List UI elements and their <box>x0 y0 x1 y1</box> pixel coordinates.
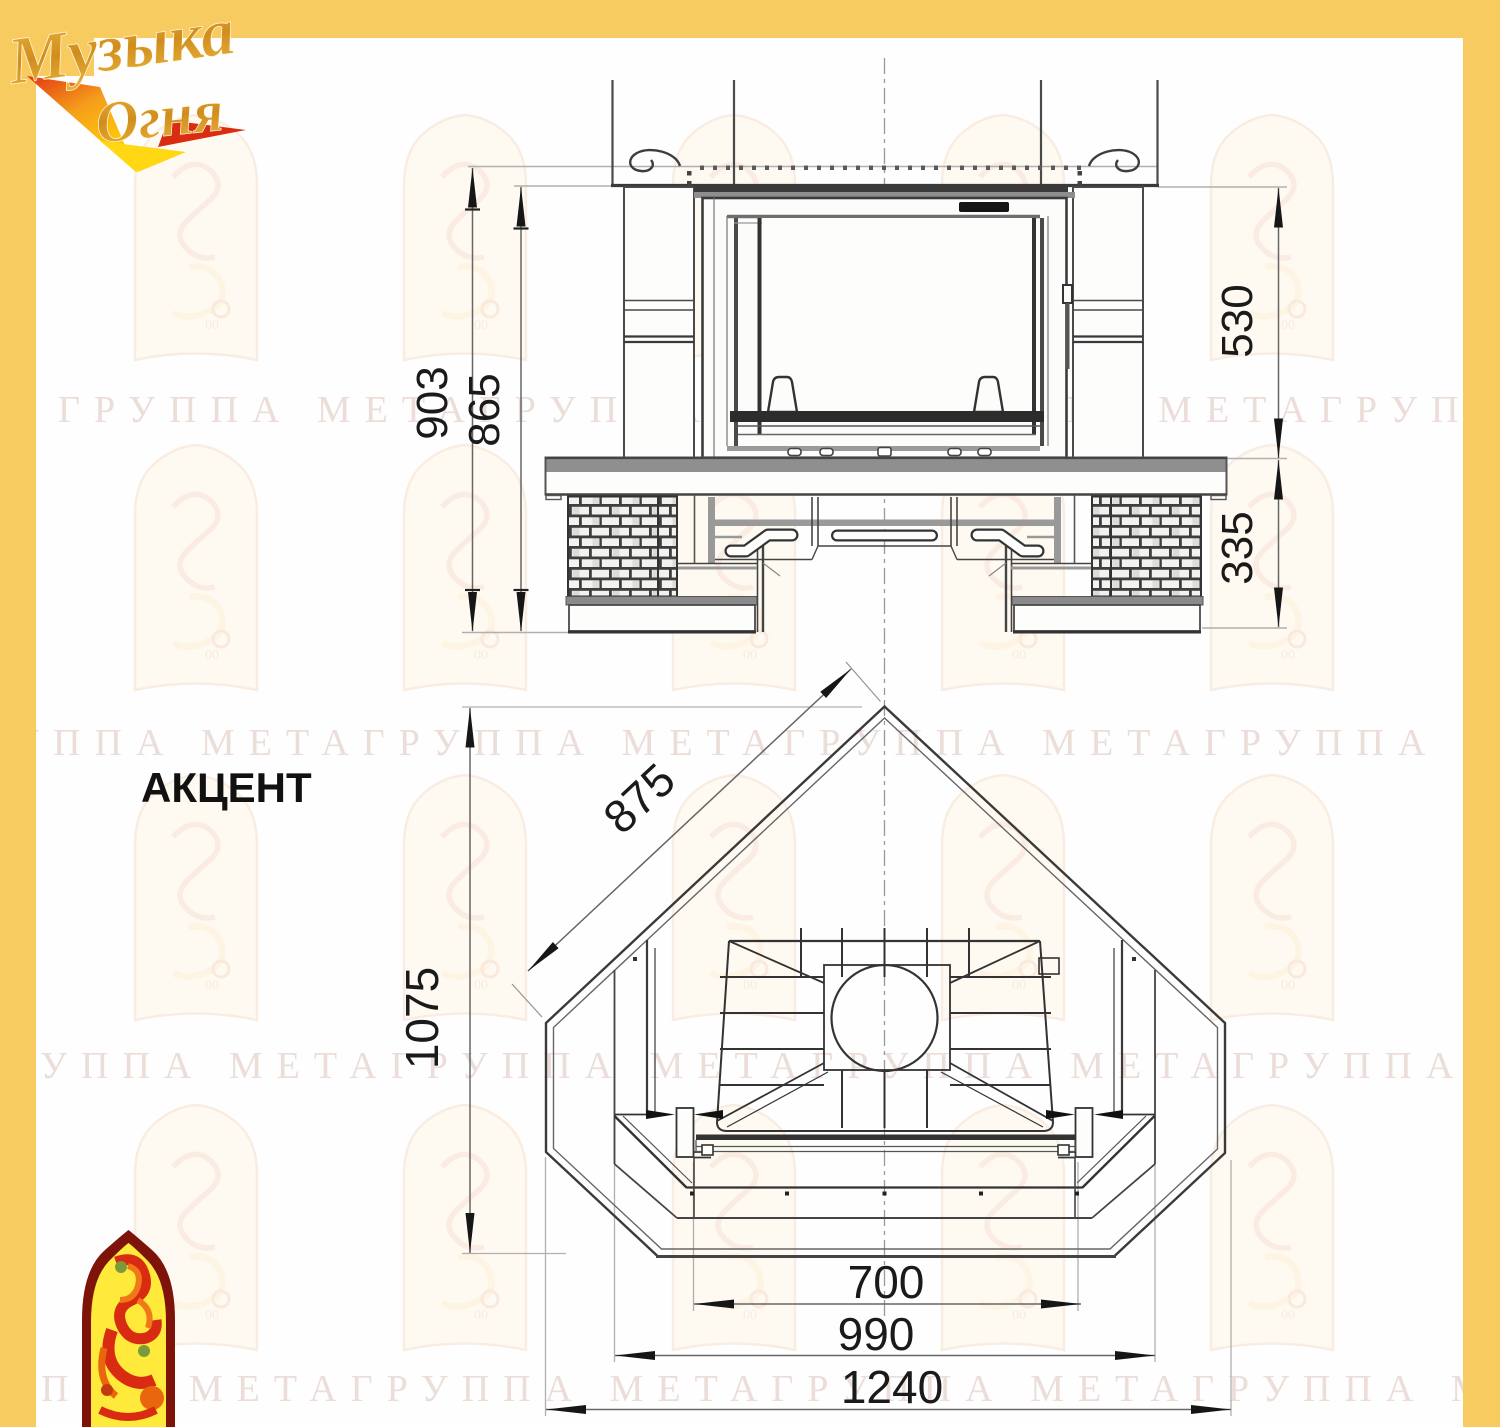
svg-text:00: 00 <box>205 978 219 993</box>
svg-text:00: 00 <box>1281 978 1295 993</box>
svg-text:ГРУППА МЕТАГРУППА МЕТАГРУППА М: ГРУППА МЕТАГРУППА МЕТАГРУППА МЕТАГРУППА … <box>0 1045 1500 1087</box>
svg-text:00: 00 <box>1281 318 1295 333</box>
svg-text:335: 335 <box>1213 511 1262 584</box>
svg-text:1240: 1240 <box>841 1361 943 1413</box>
svg-text:Огня: Огня <box>92 77 226 156</box>
svg-text:00: 00 <box>474 318 488 333</box>
svg-text:00: 00 <box>474 978 488 993</box>
svg-text:00: 00 <box>205 648 219 663</box>
svg-text:00: 00 <box>1012 648 1026 663</box>
svg-text:00: 00 <box>474 1308 488 1323</box>
svg-text:00: 00 <box>1281 648 1295 663</box>
svg-text:865: 865 <box>460 373 509 446</box>
svg-text:990: 990 <box>838 1308 915 1360</box>
svg-text:00: 00 <box>743 978 757 993</box>
svg-text:00: 00 <box>474 648 488 663</box>
svg-text:ГРУППА МЕТАГРУППА МЕТАГРУППА М: ГРУППА МЕТАГРУППА МЕТАГРУППА МЕТАГРУППА … <box>0 1368 1500 1410</box>
svg-text:ГРУППА МЕТАГРУППА МЕТАГРУППА М: ГРУППА МЕТАГРУППА МЕТАГРУППА МЕТАГРУППА … <box>0 722 1500 764</box>
svg-text:00: 00 <box>1281 1308 1295 1323</box>
svg-text:1075: 1075 <box>396 967 448 1069</box>
svg-text:903: 903 <box>408 366 457 439</box>
svg-text:00: 00 <box>743 1308 757 1323</box>
svg-text:00: 00 <box>205 1308 219 1323</box>
svg-text:АКЦЕНТ: АКЦЕНТ <box>141 764 312 811</box>
svg-text:530: 530 <box>1213 284 1262 357</box>
svg-text:700: 700 <box>848 1256 925 1308</box>
svg-text:00: 00 <box>1012 978 1026 993</box>
svg-text:00: 00 <box>1012 1308 1026 1323</box>
svg-text:00: 00 <box>743 648 757 663</box>
svg-text:00: 00 <box>205 318 219 333</box>
